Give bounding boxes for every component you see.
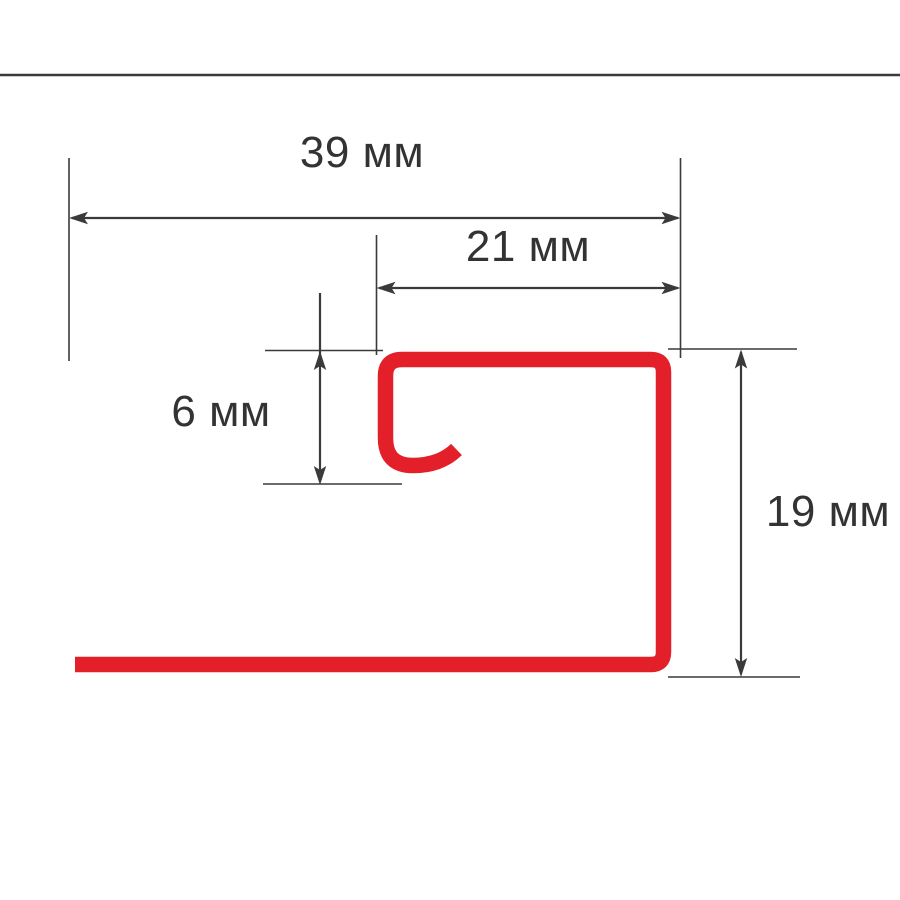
diagram-canvas (0, 0, 900, 900)
dimension-diagram: 39 мм 21 мм 6 мм 19 мм (0, 0, 900, 900)
j-profile-outline (75, 360, 664, 665)
dimension-label-hook-height: 6 мм (171, 390, 270, 434)
dimension-label-opening-width: 21 мм (466, 225, 590, 269)
dimension-label-profile-height: 19 мм (766, 490, 890, 534)
dimension-label-total-width: 39 мм (300, 131, 424, 175)
